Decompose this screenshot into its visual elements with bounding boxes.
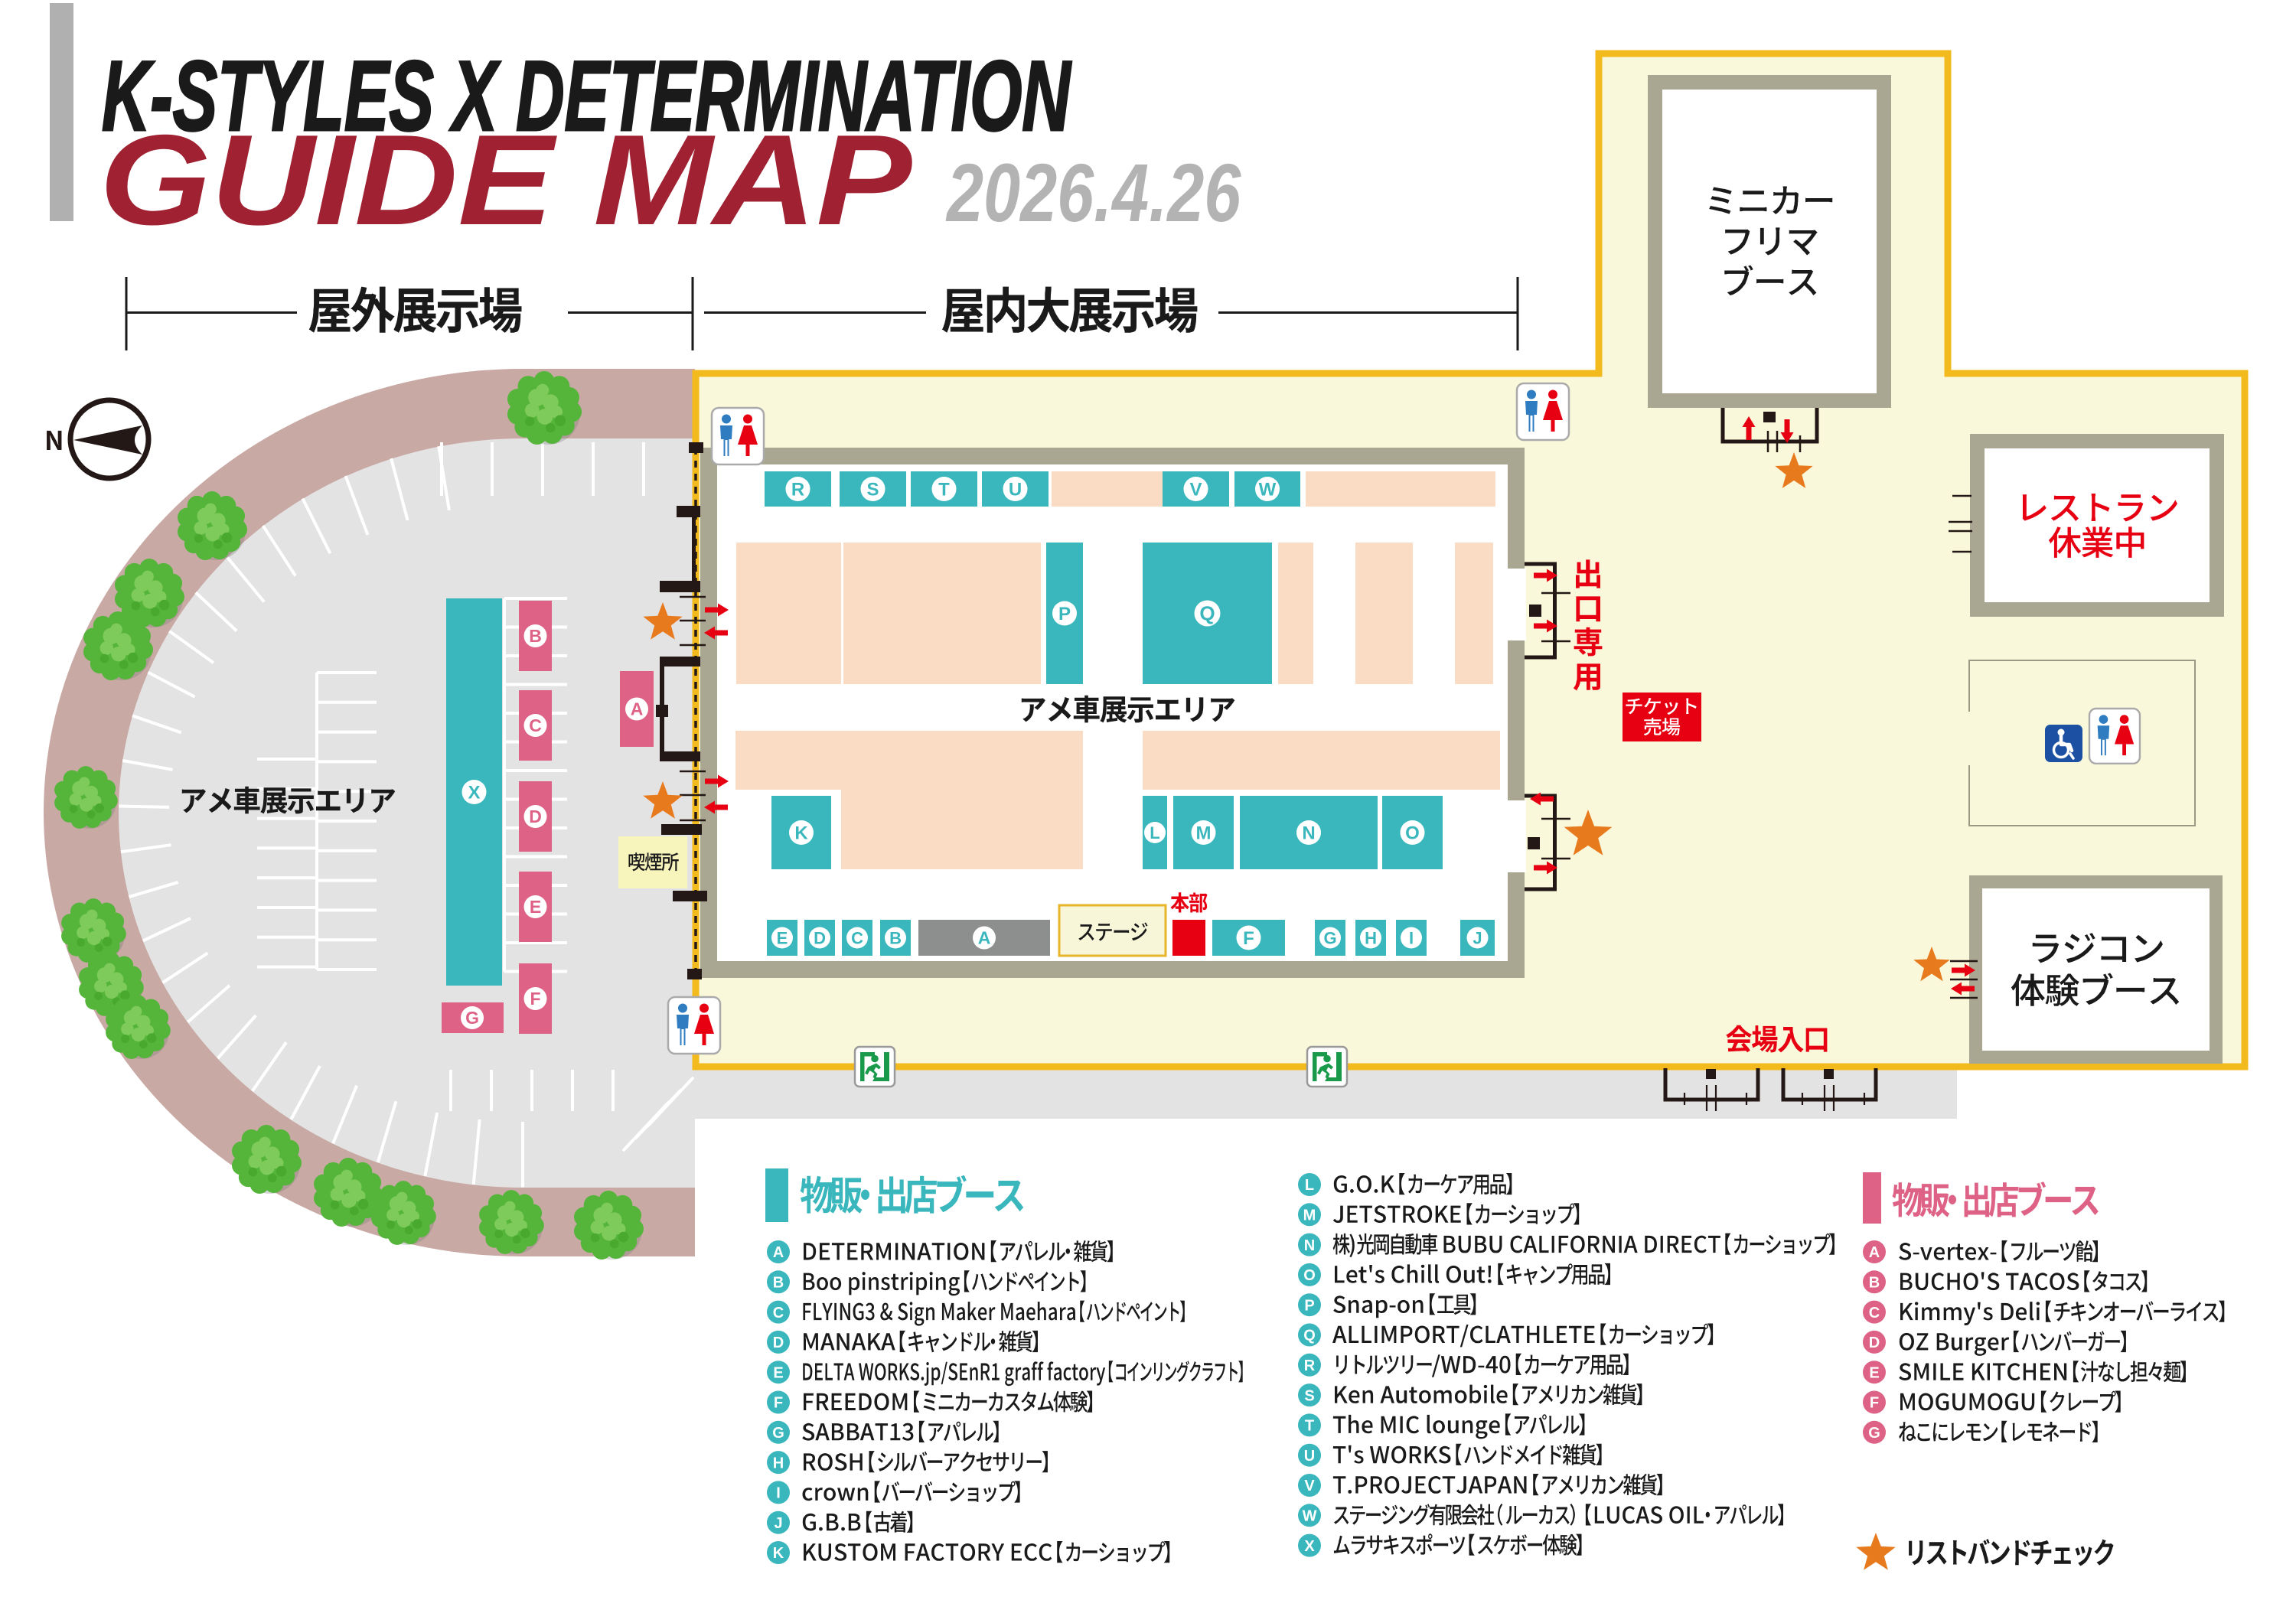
svg-text:D: D bbox=[773, 1335, 784, 1351]
svg-text:C: C bbox=[1869, 1305, 1880, 1322]
svg-text:G: G bbox=[772, 1425, 784, 1442]
svg-text:Q: Q bbox=[1303, 1328, 1316, 1344]
svg-text:P: P bbox=[1058, 604, 1071, 624]
svg-text:G: G bbox=[465, 1008, 479, 1028]
svg-text:E: E bbox=[777, 928, 788, 947]
svg-text:J: J bbox=[1473, 928, 1482, 947]
svg-text:G: G bbox=[1868, 1425, 1880, 1442]
svg-text:A: A bbox=[1869, 1244, 1880, 1261]
svg-text:E: E bbox=[1869, 1364, 1879, 1381]
svg-text:D: D bbox=[814, 928, 826, 947]
svg-text:O: O bbox=[1303, 1267, 1316, 1284]
svg-text:B: B bbox=[773, 1275, 784, 1292]
svg-text:K: K bbox=[794, 823, 808, 844]
svg-text:P: P bbox=[1304, 1297, 1314, 1314]
svg-text:S: S bbox=[866, 480, 879, 500]
svg-text:F: F bbox=[774, 1395, 783, 1412]
svg-text:D: D bbox=[1869, 1335, 1880, 1351]
svg-text:U: U bbox=[1304, 1448, 1315, 1465]
svg-text:H: H bbox=[1365, 928, 1377, 947]
svg-text:E: E bbox=[530, 897, 541, 917]
svg-text:B: B bbox=[889, 928, 902, 947]
svg-text:X: X bbox=[1304, 1538, 1315, 1555]
svg-text:I: I bbox=[776, 1485, 781, 1502]
svg-text:X: X bbox=[468, 783, 480, 803]
svg-text:W: W bbox=[1259, 480, 1277, 500]
svg-text:L: L bbox=[1150, 823, 1159, 842]
svg-text:Q: Q bbox=[1199, 602, 1215, 625]
svg-text:V: V bbox=[1189, 480, 1202, 500]
svg-text:K: K bbox=[773, 1545, 784, 1562]
svg-text:L: L bbox=[1305, 1177, 1314, 1194]
svg-text:R: R bbox=[791, 480, 804, 500]
svg-text:A: A bbox=[773, 1244, 784, 1261]
svg-text:T: T bbox=[1305, 1418, 1314, 1435]
svg-text:N: N bbox=[1302, 823, 1315, 844]
svg-text:W: W bbox=[1303, 1508, 1317, 1525]
svg-text:E: E bbox=[773, 1364, 783, 1381]
svg-text:2026.4.26: 2026.4.26 bbox=[945, 146, 1241, 239]
svg-text:V: V bbox=[1304, 1478, 1315, 1494]
svg-text:M: M bbox=[1303, 1207, 1316, 1224]
svg-text:G: G bbox=[1323, 928, 1336, 947]
svg-text:T: T bbox=[938, 480, 950, 500]
svg-text:O: O bbox=[1405, 823, 1420, 844]
svg-text:C: C bbox=[529, 715, 542, 735]
svg-text:U: U bbox=[1009, 480, 1022, 500]
svg-text:B: B bbox=[529, 626, 542, 646]
svg-text:A: A bbox=[631, 699, 644, 719]
svg-text:F: F bbox=[530, 989, 540, 1009]
svg-text:H: H bbox=[773, 1455, 784, 1471]
svg-text:J: J bbox=[774, 1515, 782, 1532]
svg-text:I: I bbox=[1409, 928, 1414, 947]
svg-text:B: B bbox=[1869, 1275, 1880, 1292]
svg-text:N: N bbox=[1304, 1237, 1315, 1254]
svg-text:C: C bbox=[851, 928, 863, 947]
svg-text:GUIDE MAP: GUIDE MAP bbox=[99, 108, 912, 252]
svg-text:A: A bbox=[978, 928, 991, 948]
svg-text:C: C bbox=[773, 1305, 784, 1322]
svg-text:D: D bbox=[529, 807, 542, 826]
svg-text:S: S bbox=[1304, 1387, 1314, 1404]
svg-text:F: F bbox=[1870, 1395, 1879, 1412]
svg-text:R: R bbox=[1304, 1357, 1316, 1374]
svg-text:M: M bbox=[1196, 823, 1212, 844]
svg-text:F: F bbox=[1243, 928, 1254, 949]
